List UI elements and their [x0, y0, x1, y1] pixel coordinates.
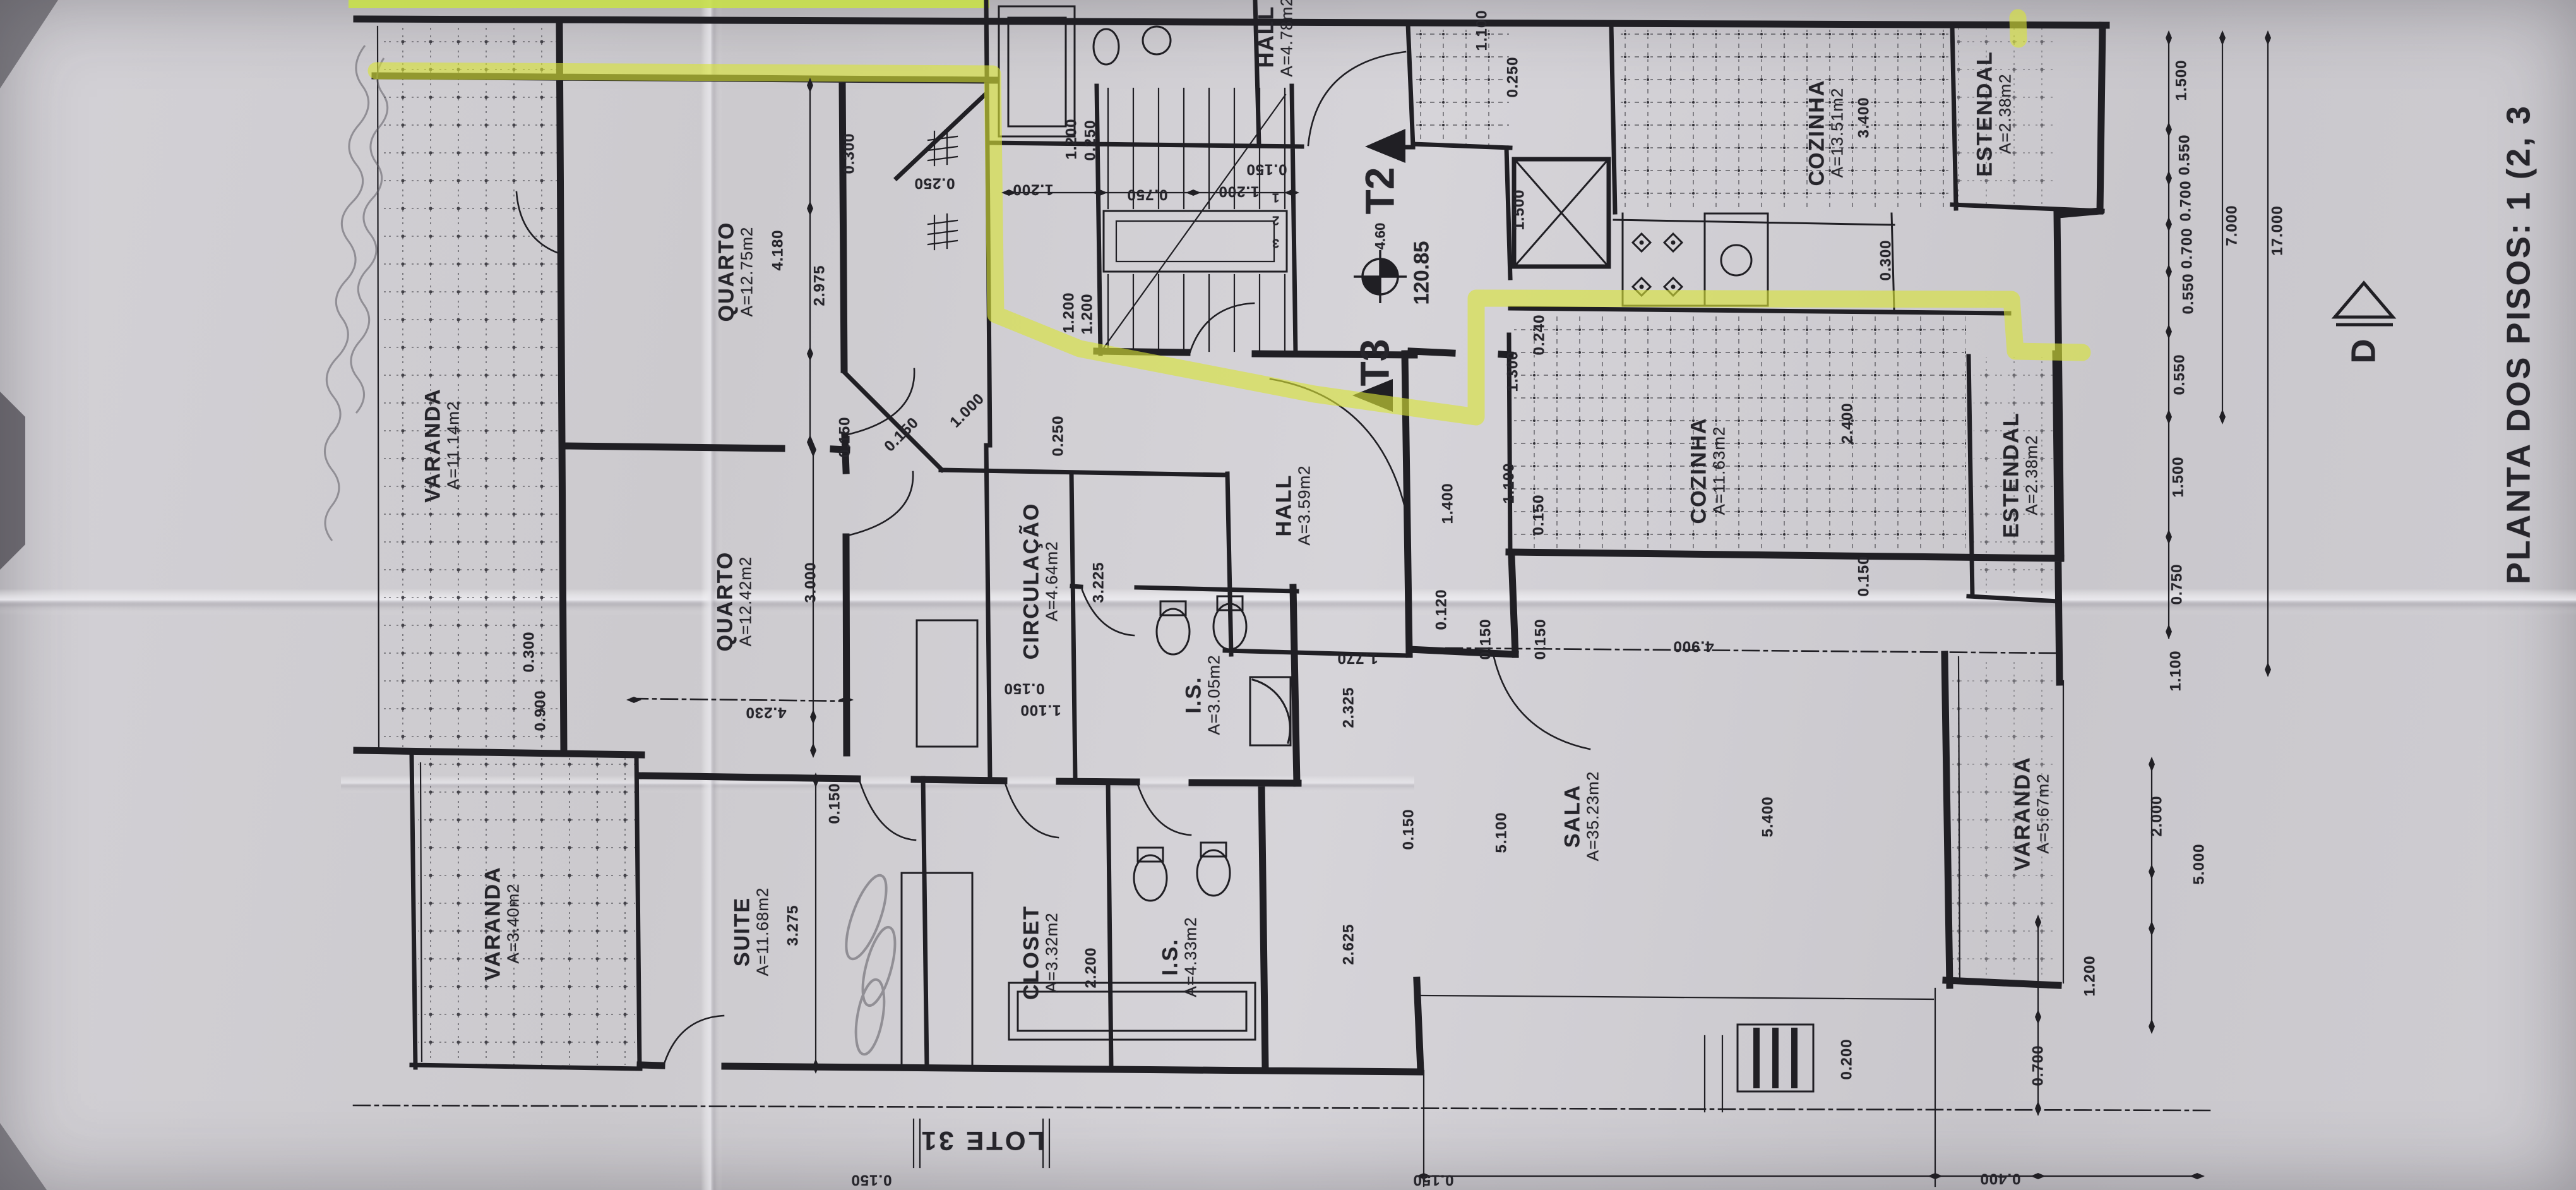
dimension-label: 0.150: [1532, 618, 1548, 659]
dimension-label: 0.150: [1477, 618, 1493, 659]
dimension-label: 0.300: [841, 133, 857, 174]
dimension-label: 4.230: [745, 704, 786, 720]
dimension-label: 3.000: [802, 562, 818, 603]
room-label: CLOSETA=3.32m2: [1021, 905, 1061, 1000]
dimension-label: 1: [1272, 191, 1279, 204]
dimension-label: 0.150: [1856, 555, 1871, 596]
dimension-label: 0.250: [1050, 415, 1066, 456]
dimension-label: 2.000: [2149, 795, 2164, 836]
dimension-label: 3.275: [785, 905, 801, 946]
dimension-label: 2.325: [1340, 687, 1356, 728]
floor-level: 120.85: [1411, 241, 1433, 305]
room-label: SALAA=35.23m2: [1562, 771, 1602, 862]
dimension-label: 1.100: [2168, 650, 2183, 691]
dimension-label: 1.100: [1501, 462, 1517, 503]
dimension-label: 1.500: [2173, 59, 2189, 100]
dimension-label: 3.225: [1090, 562, 1106, 603]
dimension-label: 0.240: [1531, 314, 1547, 355]
dimension-label: 0.150: [1530, 494, 1546, 535]
dimension-label: 1.100: [1020, 702, 1061, 718]
room-label: VARANDAA=5.67m2: [2012, 756, 2052, 870]
dimension-label: 0.250: [914, 175, 955, 191]
room-label: QUARTOA=12.75m2: [716, 222, 756, 322]
dimension-label: 0.150: [1412, 1172, 1453, 1187]
dimension-label: 0.900: [532, 690, 548, 731]
room-label: SUITEA=11.68m2: [732, 887, 772, 977]
dimension-label: 0.150: [826, 783, 842, 824]
dimension-label: 3.400: [1856, 97, 1871, 138]
dimension-label: 0.250: [1505, 56, 1520, 97]
dimension-label: 2.975: [811, 265, 827, 306]
dimension-label: 1.000: [947, 390, 987, 431]
dimension-label: 1.200: [1079, 293, 1095, 334]
label-layer: PLANTA DOS PISOS: 1 (2, 3 LOTE 31 T2 4.6…: [0, 0, 2576, 1190]
dimension-label: 0.150: [1003, 680, 1044, 696]
dimension-label: 5.000: [2191, 843, 2207, 884]
dimension-label: 0.150: [1400, 808, 1416, 850]
dimension-label: 1.100: [1474, 9, 1489, 51]
apartment-t2-label: T2: [1359, 167, 1401, 215]
dimension-label: 0.700: [2178, 180, 2193, 221]
dimension-label: 2.625: [1340, 923, 1356, 965]
dimension-label: 0.750: [1126, 186, 1167, 202]
apartment-t3-label: T3: [1354, 339, 1396, 387]
dimension-label: 1.200: [2082, 955, 2097, 996]
dimension-label: 0.150: [1246, 161, 1287, 177]
dimension-label: 1.200: [1218, 183, 1259, 199]
t2-note: 4.60: [1373, 223, 1387, 250]
room-label: ESTENDALA=2.38m2: [2001, 412, 2041, 538]
dimension-label: 5.400: [1760, 796, 1775, 837]
dimension-label: 5.100: [1493, 812, 1509, 853]
room-label: VARANDAA=3.40m2: [482, 866, 522, 980]
dimension-label: 1.400: [1440, 483, 1455, 524]
dimension-label: 0.150: [850, 1172, 891, 1187]
room-label: ESTENDALA=2.38m2: [1974, 51, 2014, 176]
dimension-label: 0.150: [837, 416, 852, 457]
dimension-label: 1.200: [1063, 118, 1079, 159]
dimension-label: 1.500: [1511, 189, 1527, 230]
dimension-label: 0.120: [1433, 589, 1449, 630]
dimension-label: 7.000: [2224, 205, 2239, 246]
dimension-label: 1.200: [1061, 292, 1076, 333]
room-label: CIRCULAÇÃOA=4.64m2: [1021, 503, 1061, 660]
dimension-label: 2.400: [1839, 402, 1855, 443]
room-label: I.S.A=3.05m2: [1183, 654, 1223, 735]
dimension-label: 0.550: [2176, 134, 2192, 175]
dimension-label: 1.770: [1337, 650, 1378, 666]
room-label: COZINHAA=11.63m2: [1688, 418, 1728, 524]
room-label: HALLA=3.59m2: [1273, 465, 1313, 545]
dimension-label: 1.300: [1505, 351, 1520, 392]
plan-title: PLANTA DOS PISOS: 1 (2, 3: [2502, 104, 2537, 584]
dimension-label: 0.700: [2179, 227, 2195, 268]
dimension-label: 2: [1272, 213, 1279, 227]
dimension-label: 0.150: [881, 414, 922, 455]
dimension-label: 4.900: [1673, 638, 1714, 654]
dimension-label: 0.300: [521, 631, 537, 672]
dimension-label: 0.400: [1979, 1170, 2020, 1186]
dimension-label: 2.200: [1083, 947, 1099, 988]
dimension-label: 0.250: [1082, 119, 1098, 160]
room-label: QUARTOA=12.42m2: [715, 551, 754, 652]
lot-label: LOTE 31: [919, 1127, 1044, 1155]
dimension-label: 0.750: [2169, 563, 2185, 604]
dimension-label: 0.300: [1878, 239, 1893, 280]
dimension-label: 0.550: [2180, 273, 2196, 314]
dimension-label: 4.180: [770, 229, 785, 270]
room-label: I.S.A=4.33m2: [1160, 917, 1200, 997]
dimension-label: 1.200: [1012, 181, 1053, 197]
dimension-label: 3: [1272, 236, 1279, 249]
room-label: COZINHAA=13.51m2: [1806, 80, 1846, 186]
dimension-label: 17.000: [2269, 205, 2285, 255]
dimension-label: 0.200: [1839, 1038, 1854, 1079]
room-label: VARANDAA=11.14m2: [422, 388, 462, 502]
dimension-label: 0.550: [2171, 354, 2187, 395]
room-label: HALLA=4.78m2: [1256, 0, 1296, 77]
dimension-label: 0.700: [2030, 1045, 2046, 1086]
section-marker-letter: D: [2346, 339, 2382, 364]
floor-plan-photo: PLANTA DOS PISOS: 1 (2, 3 LOTE 31 T2 4.6…: [0, 0, 2576, 1190]
dimension-label: 1.500: [2170, 456, 2186, 497]
